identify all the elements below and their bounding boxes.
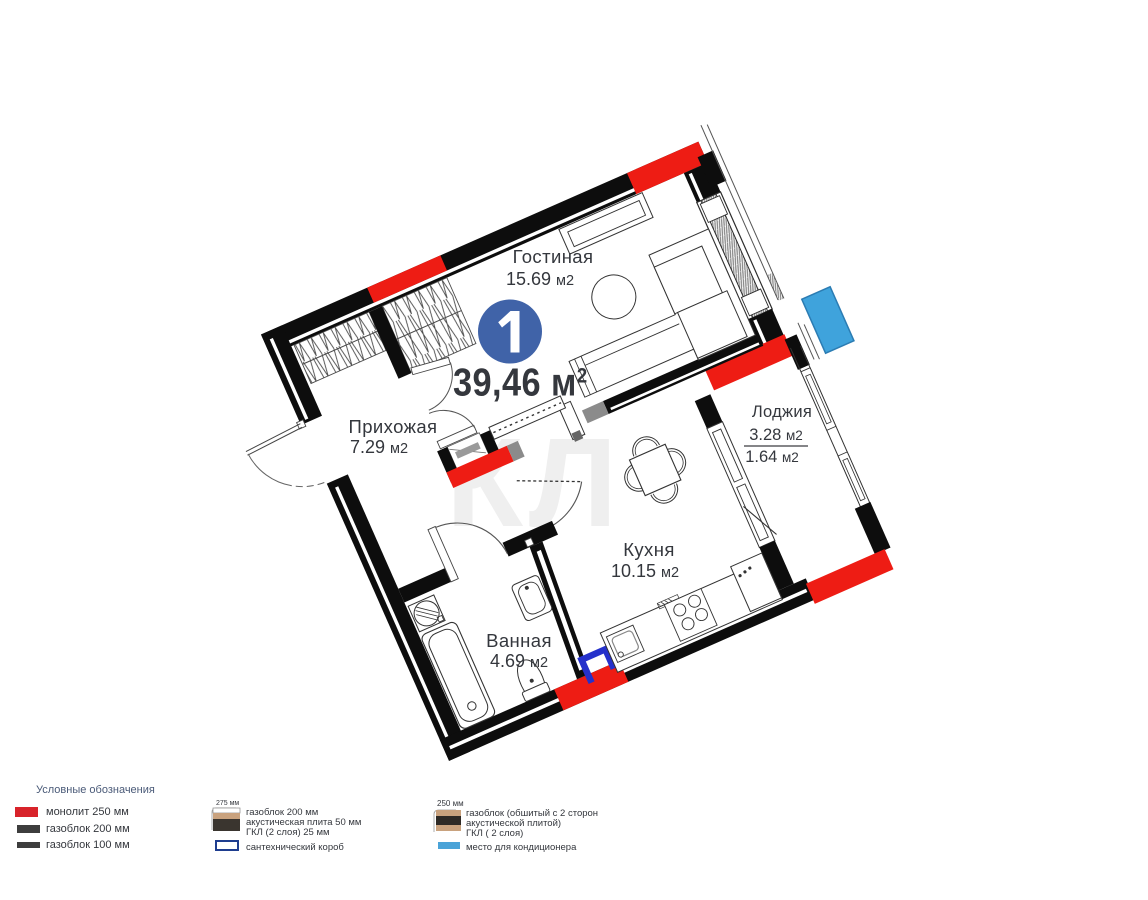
- svg-text:1.64 м2: 1.64 м2: [745, 448, 799, 466]
- svg-text:250 мм: 250 мм: [437, 799, 464, 808]
- svg-text:ГКЛ ( 2 слоя): ГКЛ ( 2 слоя): [466, 828, 523, 839]
- svg-text:Гостиная: Гостиная: [513, 246, 594, 267]
- svg-text:монолит 250 мм: монолит 250 мм: [46, 806, 129, 818]
- svg-text:Лоджия: Лоджия: [752, 403, 812, 421]
- svg-text:Кухня: Кухня: [623, 539, 675, 560]
- svg-text:39,46 м2: 39,46 м2: [453, 360, 588, 404]
- svg-text:газоблок 200 мм: газоблок 200 мм: [46, 823, 130, 835]
- svg-text:место для кондиционера: место для кондиционера: [466, 842, 577, 853]
- svg-text:Ванная: Ванная: [486, 630, 552, 651]
- svg-text:ГКЛ (2 слоя) 25 мм: ГКЛ (2 слоя) 25 мм: [246, 827, 330, 838]
- svg-text:275 мм: 275 мм: [216, 800, 239, 807]
- svg-text:3.28 м2: 3.28 м2: [749, 426, 803, 444]
- svg-text:Условные обозначения: Условные обозначения: [36, 784, 155, 796]
- svg-text:Прихожая: Прихожая: [349, 416, 438, 437]
- svg-text:газоблок 100 мм: газоблок 100 мм: [46, 839, 130, 851]
- svg-text:сантехнический короб: сантехнический короб: [246, 842, 344, 853]
